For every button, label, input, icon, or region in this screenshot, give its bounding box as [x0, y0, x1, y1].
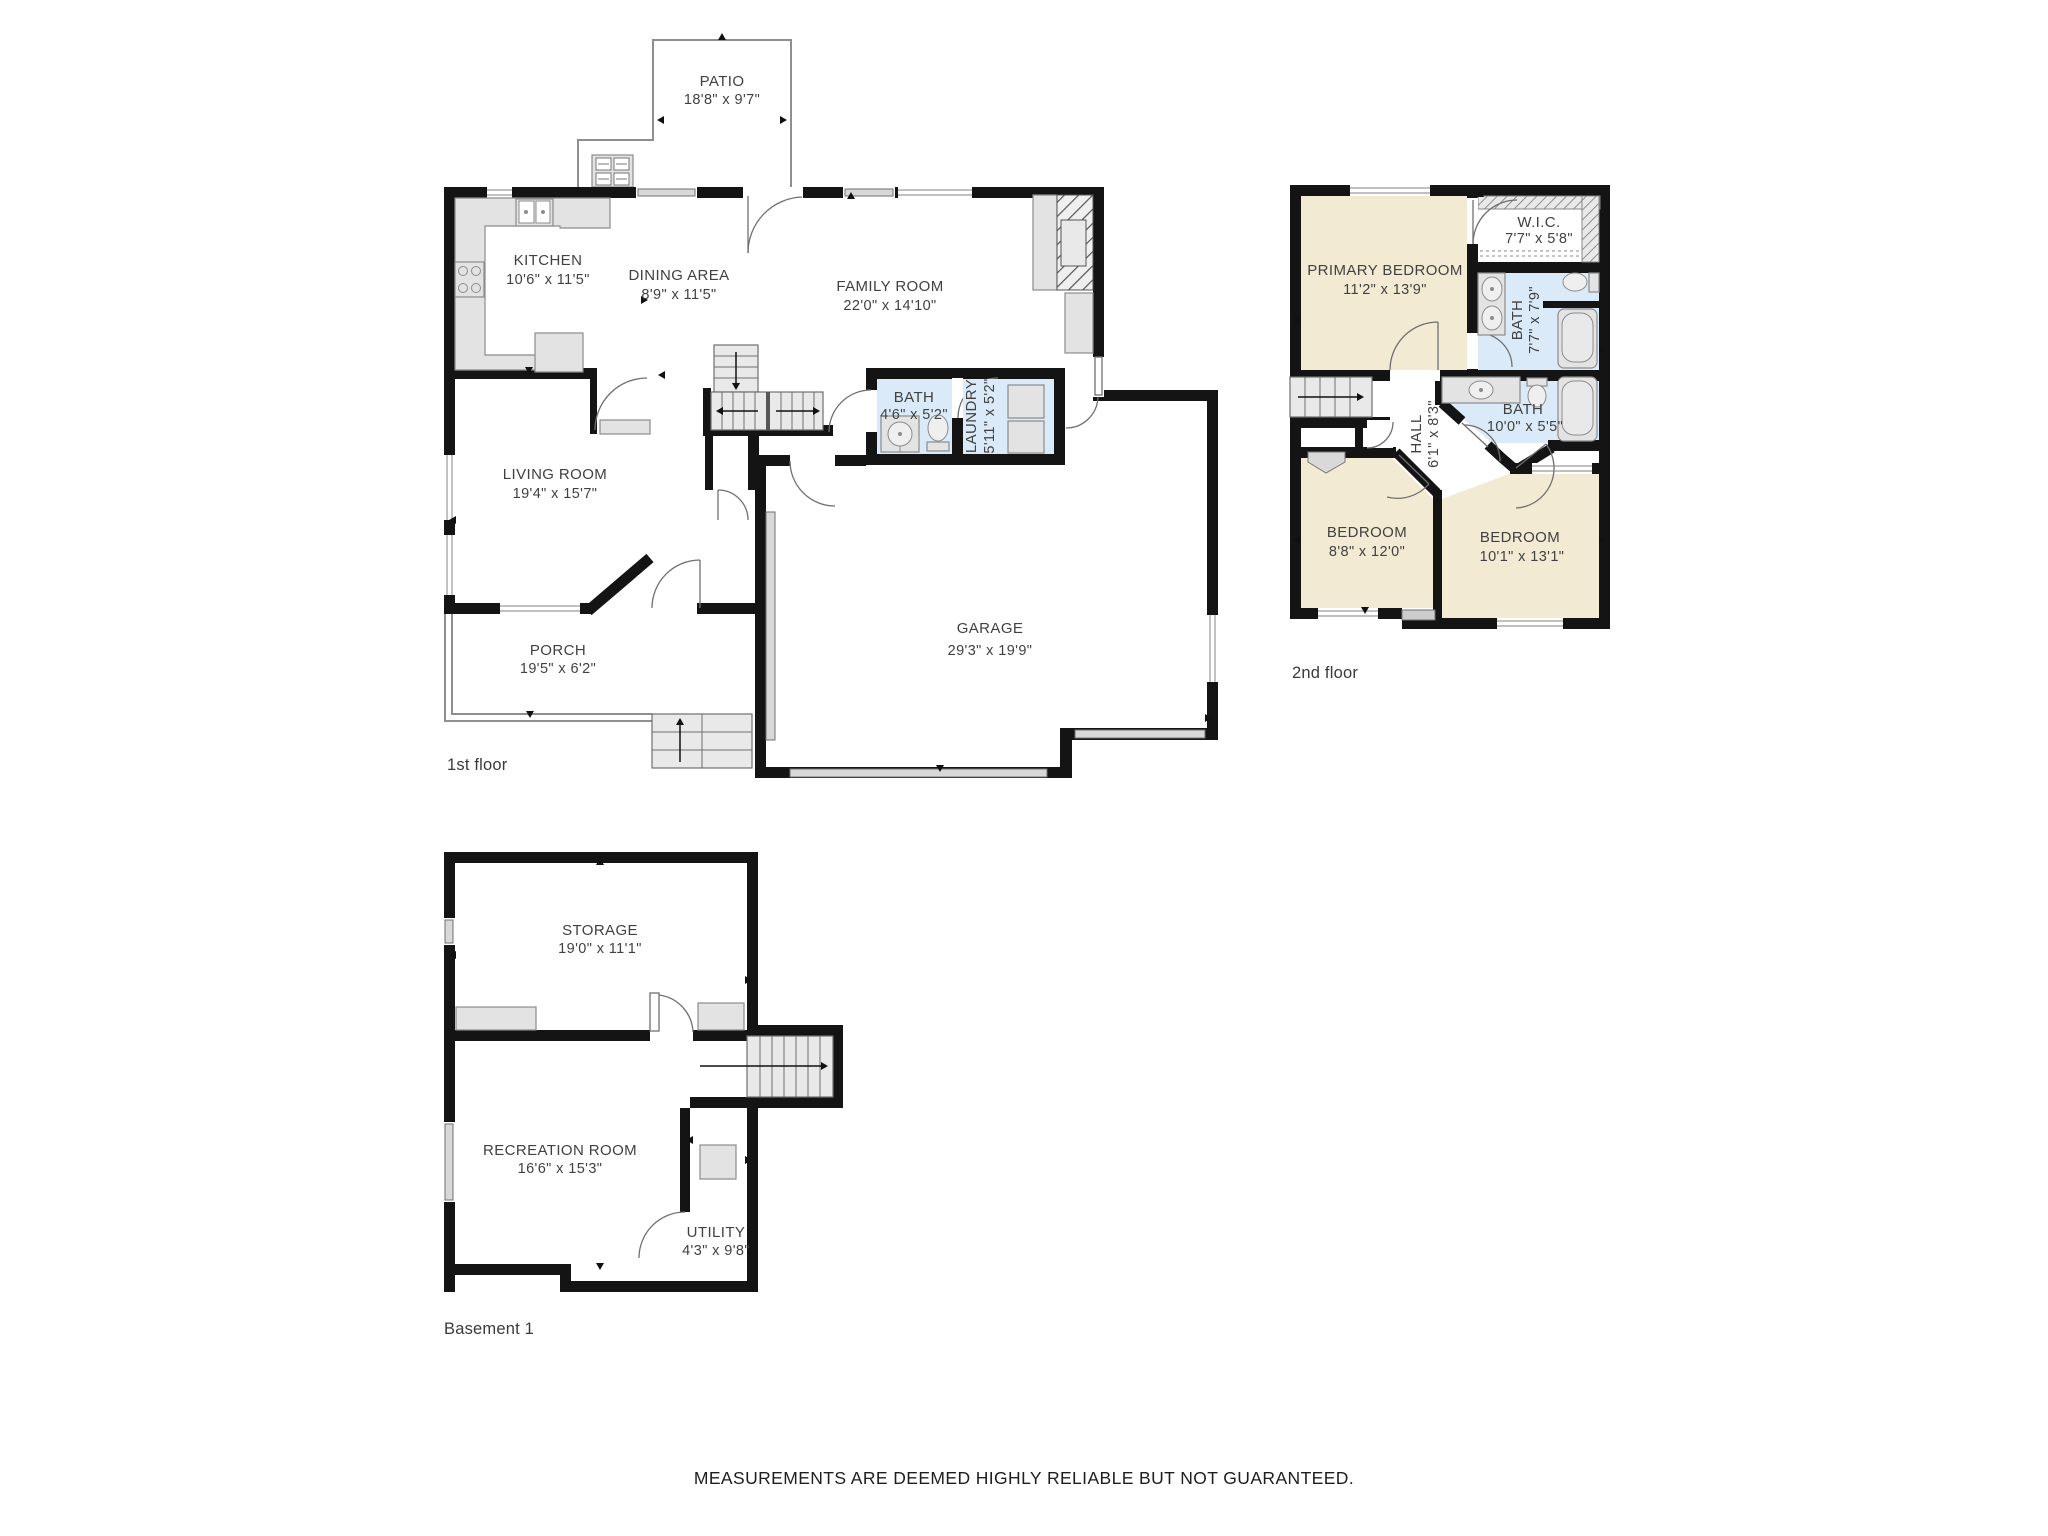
utility-equipment-icon	[700, 1145, 736, 1179]
room-label-patio: PATIO	[700, 73, 745, 90]
fireplace-icon	[1033, 195, 1093, 353]
basement-label: Basement 1	[444, 1320, 534, 1339]
second-floor-plan: PRIMARY BEDROOM 11'2" x 13'9" W.I.C. 7'7…	[1283, 178, 1623, 643]
room-dims-laundry: 5'11" x 5'2"	[982, 378, 998, 453]
room-dims-bath-hall: 10'0" x 5'5"	[1487, 419, 1563, 435]
second-floor-label: 2nd floor	[1292, 664, 1358, 683]
room-dims-storage: 19'0" x 11'1"	[558, 941, 642, 957]
room-dims-primary-bedroom: 11'2" x 13'9"	[1343, 282, 1427, 298]
room-dims-patio: 18'8" x 9'7"	[684, 92, 760, 108]
room-dims-hall: 6'1" x 8'3"	[1426, 400, 1442, 468]
room-label-bath-hall: BATH	[1503, 401, 1544, 418]
room-label-wic: W.I.C.	[1517, 214, 1560, 231]
patio-outline	[578, 33, 791, 187]
room-label-recreation: RECREATION ROOM	[483, 1142, 637, 1159]
stove-icon	[455, 262, 484, 297]
room-dims-dining: 8'9" x 11'5"	[641, 287, 716, 303]
first-floor-stairs	[711, 345, 823, 430]
room-label-bath1f: BATH	[894, 389, 935, 406]
room-label-bath-upper: BATH	[1509, 300, 1526, 341]
kitchen-counters	[455, 198, 650, 434]
room-label-dining: DINING AREA	[628, 267, 729, 284]
room-dims-family: 22'0" x 14'10"	[843, 298, 936, 314]
room-label-porch: PORCH	[530, 642, 586, 659]
room-label-garage: GARAGE	[957, 620, 1024, 637]
porch-steps	[652, 714, 752, 768]
basement-stairs	[700, 1036, 833, 1097]
room-dims-kitchen: 10'6" x 11'5"	[506, 272, 590, 288]
second-floor-stairs	[1290, 377, 1372, 417]
room-dims-bedroom-right: 10'1" x 13'1"	[1480, 549, 1565, 565]
first-floor-plan: PATIO 18'8" x 9'7" KITCHEN 10'6" x 11'5"…	[430, 25, 1290, 790]
bathtub-icon	[1558, 309, 1597, 368]
room-label-primary-bedroom: PRIMARY BEDROOM	[1307, 262, 1462, 279]
room-label-family: FAMILY ROOM	[836, 278, 943, 295]
room-label-bedroom-left: BEDROOM	[1327, 524, 1407, 541]
room-dims-bath1f: 4'6" x 5'2"	[880, 407, 948, 423]
room-dims-garage: 29'3" x 19'9"	[948, 643, 1033, 659]
room-dims-living: 19'4" x 15'7"	[513, 486, 598, 502]
room-label-kitchen: KITCHEN	[514, 252, 583, 269]
room-label-bedroom-right: BEDROOM	[1480, 529, 1560, 546]
room-dims-bedroom-left: 8'8" x 12'0"	[1329, 544, 1405, 560]
measurements-disclaimer: MEASUREMENTS ARE DEEMED HIGHLY RELIABLE …	[0, 1468, 2048, 1489]
room-dims-utility: 4'3" x 9'8"	[682, 1243, 750, 1259]
room-dims-recreation: 16'6" x 15'3"	[518, 1161, 603, 1177]
floorplan-page: PATIO 18'8" x 9'7" KITCHEN 10'6" x 11'5"…	[0, 0, 2048, 1536]
room-label-hall: HALL	[1408, 414, 1425, 453]
room-dims-porch: 19'5" x 6'2"	[520, 661, 596, 677]
room-label-laundry: LAUNDRY	[963, 379, 980, 453]
room-label-storage: STORAGE	[562, 922, 638, 939]
room-dims-wic: 7'7" x 5'8"	[1505, 231, 1573, 247]
toilet-icon	[1563, 273, 1599, 292]
room-label-utility: UTILITY	[687, 1224, 746, 1241]
room-dims-bath-upper: 7'7" x 7'9"	[1527, 286, 1543, 354]
room-label-living: LIVING ROOM	[503, 466, 607, 483]
basement-plan: STORAGE 19'0" x 11'1" RECREATION ROOM 16…	[436, 845, 856, 1305]
porch-outline	[445, 614, 752, 768]
first-floor-label: 1st floor	[447, 756, 508, 775]
bathtub-icon	[1558, 377, 1597, 441]
dimension-ticks	[449, 858, 752, 1270]
